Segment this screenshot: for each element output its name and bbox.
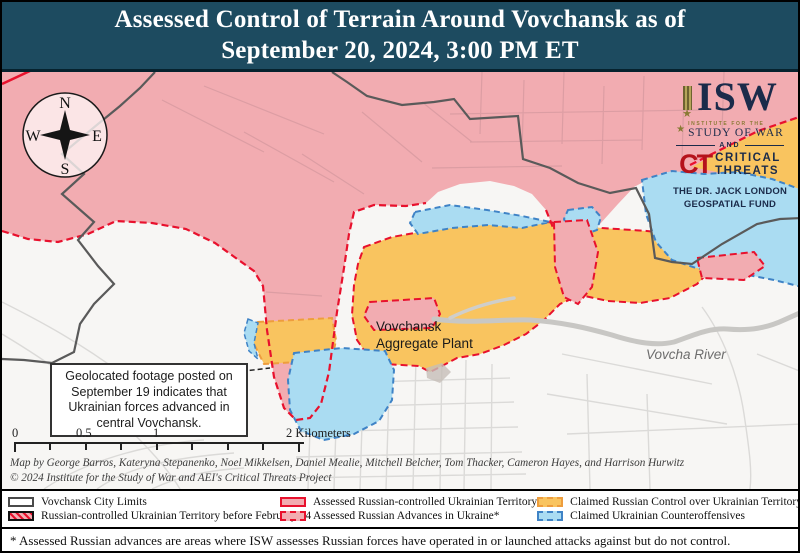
map-title-line2: September 20, 2024, 3:00 PM ET (2, 36, 798, 67)
fund-line2: GEOSPATIAL FUND (670, 199, 790, 211)
footnote: * Assessed Russian advances are areas wh… (2, 527, 798, 553)
ct-critical-text: CRITICAL (715, 152, 781, 165)
legend-column-3: Claimed Russian Control over Ukrainian T… (537, 494, 800, 524)
fund-line1: THE DR. JACK LONDON (670, 186, 790, 198)
ct-acronym: CT (679, 152, 711, 176)
credits: Map by George Barros, Kateryna Stepanenk… (10, 456, 684, 485)
scale-line (14, 442, 304, 453)
isw-medal-icon: ★ (682, 86, 692, 120)
river-label: Vovcha River (646, 347, 726, 362)
scale-tick-2-label: 2 Kilometers (286, 426, 351, 441)
plant-label: Vovchansk Aggregate Plant (376, 319, 473, 353)
legend-label-claimed-ukrainian: Claimed Ukrainian Counteroffensives (570, 510, 745, 522)
isw-map-page: Assessed Control of Terrain Around Vovch… (0, 0, 800, 553)
legend-column-2: Assessed Russian-controlled Ukrainian Te… (280, 494, 537, 524)
credits-line1: Map by George Barros, Kateryna Stepanenk… (10, 456, 684, 471)
legend-item-prefeb24: Russian-controlled Ukrainian Territory b… (8, 510, 280, 522)
credits-line2: © 2024 Institute for the Study of War an… (10, 471, 684, 486)
scale-bar: 0 0.5 1 2 Kilometers (14, 426, 304, 453)
legend-item-assessed-control: Assessed Russian-controlled Ukrainian Te… (280, 496, 537, 508)
legend-swatch-advances (280, 511, 306, 521)
compass-rose: N E S W (23, 93, 107, 178)
legend-swatch-claimed-ukrainian (537, 511, 563, 521)
map-title-bar: Assessed Control of Terrain Around Vovch… (2, 2, 798, 72)
plant-label-line1: Vovchansk (376, 319, 473, 336)
legend-label-assessed-control: Assessed Russian-controlled Ukrainian Te… (313, 496, 537, 508)
and-label: AND (719, 142, 740, 149)
ct-threats-text: THREATS (715, 165, 781, 178)
isw-acronym: ISW (697, 80, 778, 114)
legend-column-1: Vovchansk City Limits Russian-controlled… (8, 494, 280, 524)
scale-tick-0-label: 0 (12, 426, 18, 441)
legend-item-advances: Assessed Russian Advances in Ukraine* (280, 510, 537, 522)
isw-study-of-war-text: STUDY OF WAR (688, 127, 784, 139)
legend-swatch-city-limits (8, 497, 34, 507)
and-divider: AND (676, 142, 784, 149)
plant-label-line2: Aggregate Plant (376, 336, 473, 353)
geospatial-fund-text: THE DR. JACK LONDON GEOSPATIAL FUND (670, 186, 790, 211)
compass-north-label: N (59, 95, 71, 112)
legend-swatch-assessed-control (280, 497, 306, 507)
map-title-line1: Assessed Control of Terrain Around Vovch… (2, 5, 798, 36)
legend-label-claimed-russian: Claimed Russian Control over Ukrainian T… (570, 496, 800, 508)
legend-swatch-prefeb24 (8, 511, 34, 521)
map-area: N E S W Vovchansk Aggregate Plant Vovcha… (2, 72, 798, 489)
legend-item-claimed-russian: Claimed Russian Control over Ukrainian T… (537, 496, 800, 508)
legend-swatch-claimed-russian (537, 497, 563, 507)
compass-south-label: S (61, 161, 70, 178)
legend-label-advances: Assessed Russian Advances in Ukraine* (313, 510, 500, 522)
ct-logo: CT CRITICAL THREATS (670, 152, 790, 177)
isw-star-icon: ★ (676, 124, 685, 135)
legend-item-claimed-ukrainian: Claimed Ukrainian Counteroffensives (537, 510, 800, 522)
compass-west-label: W (25, 128, 41, 145)
legend-label-prefeb24: Russian-controlled Ukrainian Territory b… (41, 510, 311, 522)
legend-item-city-limits: Vovchansk City Limits (8, 496, 280, 508)
scale-labels: 0 0.5 1 2 Kilometers (14, 426, 304, 442)
isw-logo-block: ★ ISW ★ INSTITUTE FOR THE STUDY OF WAR A… (670, 80, 790, 211)
compass-east-label: E (92, 128, 102, 145)
legend-label-city-limits: Vovchansk City Limits (41, 496, 147, 508)
map-legend: Vovchansk City Limits Russian-controlled… (2, 489, 798, 527)
scale-tick-05-label: 0.5 (76, 426, 92, 441)
scale-tick-1-label: 1 (153, 426, 159, 441)
